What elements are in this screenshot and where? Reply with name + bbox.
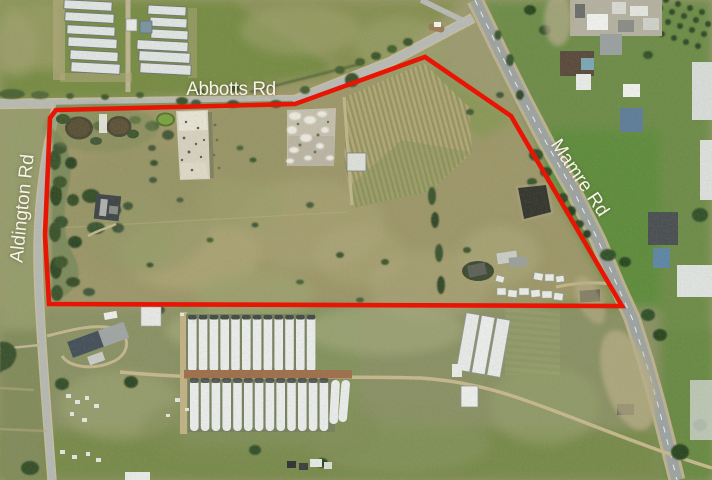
svg-text:Abbotts Rd: Abbotts Rd — [186, 79, 276, 100]
